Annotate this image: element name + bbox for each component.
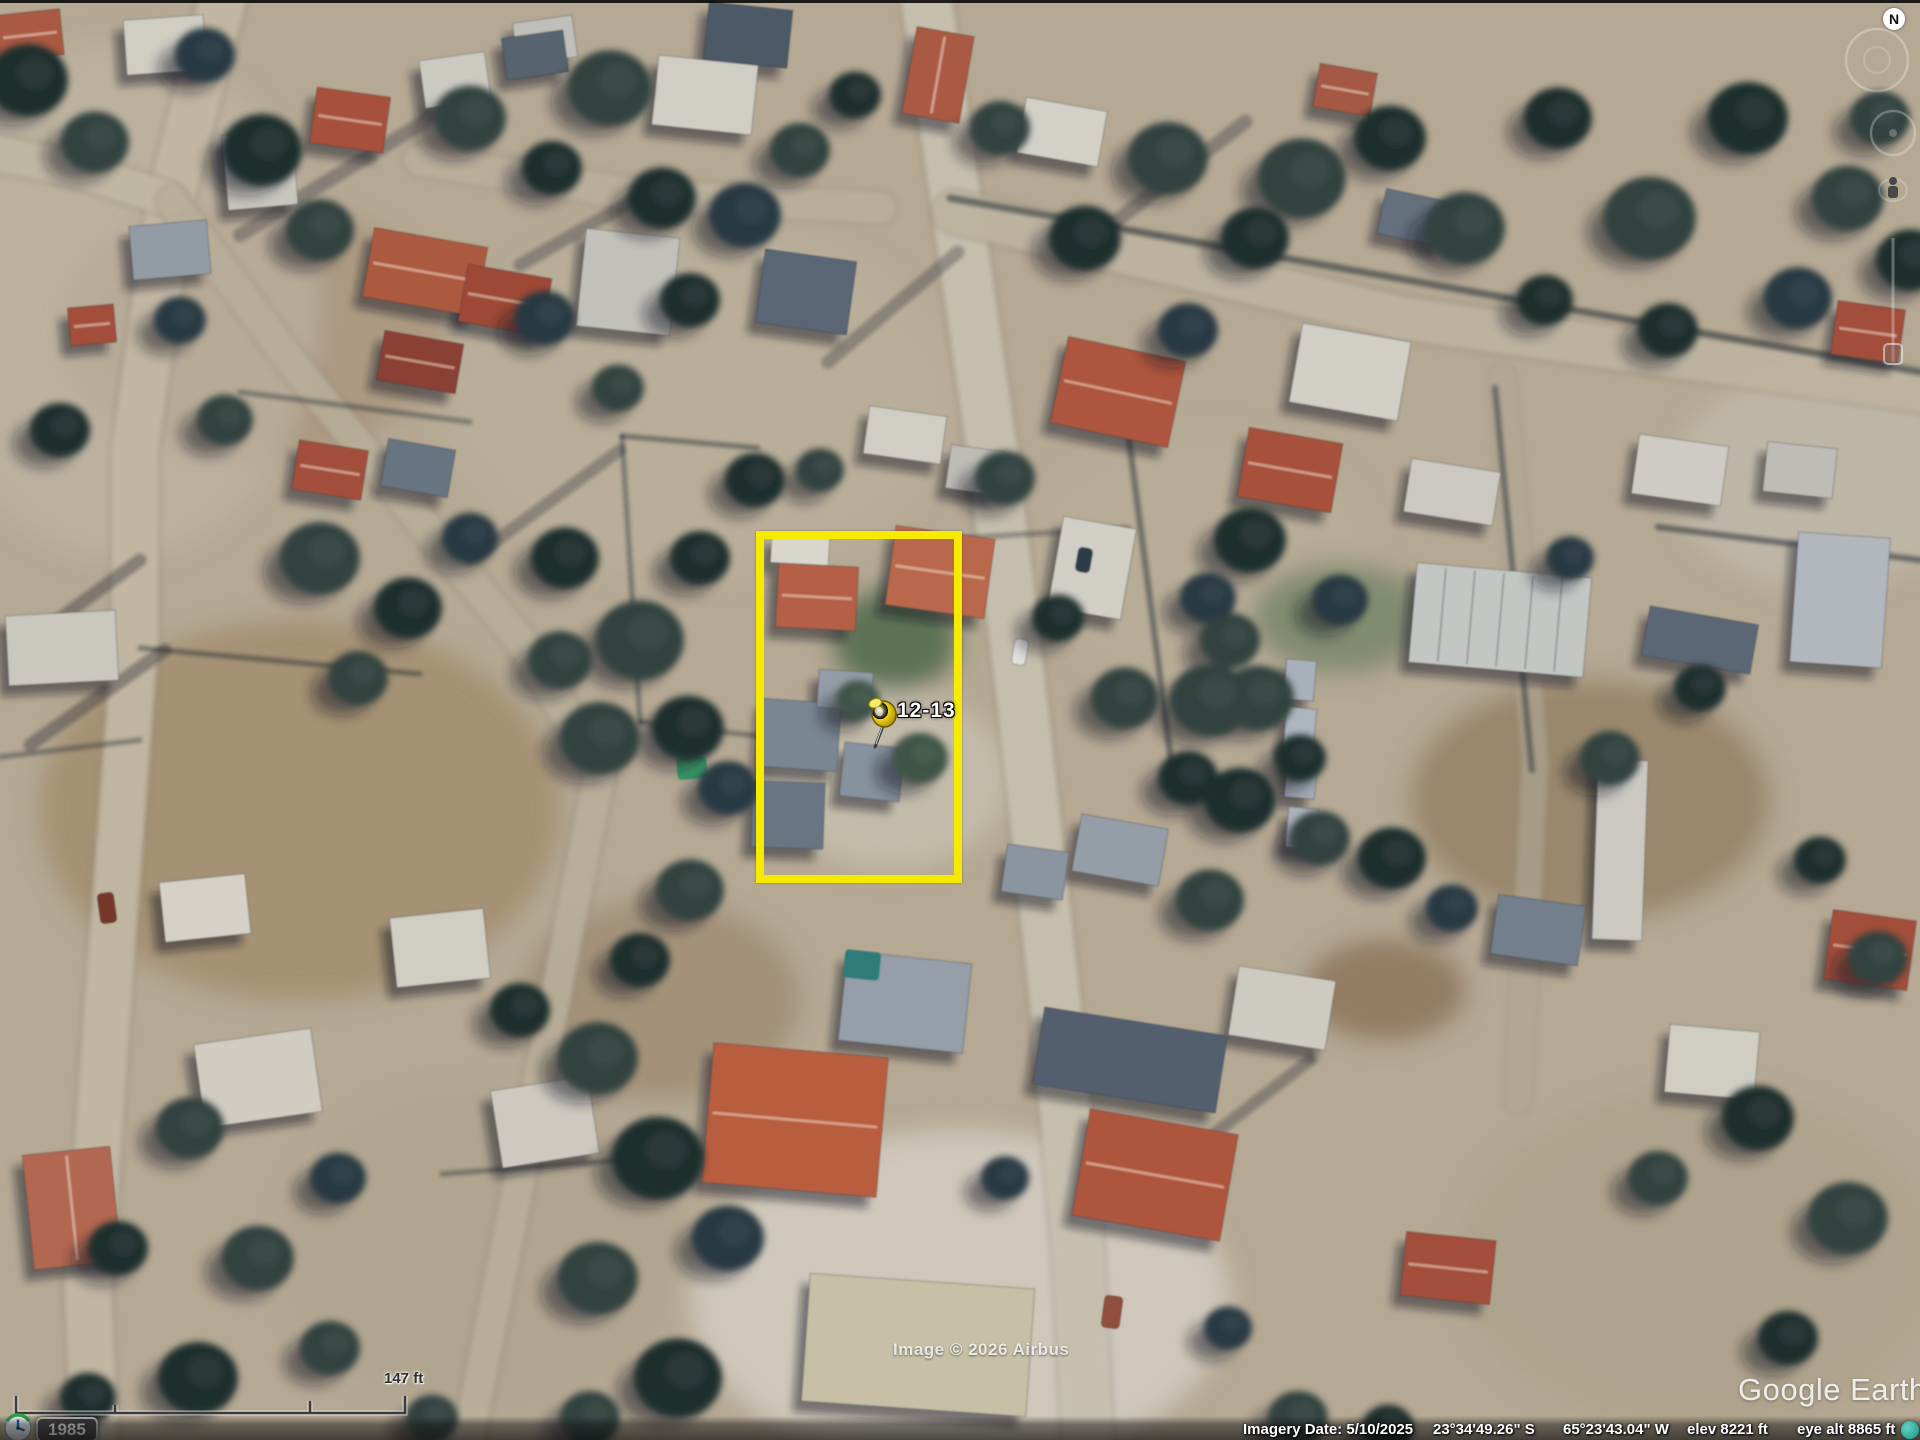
compass-n-button[interactable]: N bbox=[1883, 8, 1905, 30]
status-longitude: 65°23'43.04" W bbox=[1563, 1421, 1669, 1438]
status-elevation: elev 8221 ft bbox=[1687, 1421, 1768, 1438]
placemark-label[interactable]: 12-13 bbox=[897, 699, 956, 723]
pegman-icon[interactable] bbox=[1888, 177, 1898, 198]
navigation-controls: N bbox=[1820, 0, 1920, 400]
globe-icon bbox=[1901, 1421, 1919, 1439]
imagery-copyright: Image © 2026 Airbus bbox=[893, 1340, 1069, 1360]
status-eye-altitude: eye alt 8865 ft bbox=[1797, 1421, 1895, 1438]
status-bar: Imagery Date: 5/10/2025 23°34'49.26" S 6… bbox=[0, 1416, 1920, 1440]
look-joystick[interactable] bbox=[1846, 29, 1908, 91]
google-earth-logo: Google Earth bbox=[1738, 1372, 1920, 1408]
status-imagery-date: Imagery Date: 5/10/2025 bbox=[1243, 1421, 1413, 1438]
scale-bar-label: 147 ft bbox=[384, 1370, 423, 1387]
top-edge-strip bbox=[0, 0, 1920, 3]
zoom-slider-handle[interactable] bbox=[1884, 344, 1902, 364]
status-latitude: 23°34'49.26" S bbox=[1433, 1421, 1535, 1438]
google-earth-viewport: 12-13 N 147 ft bbox=[0, 0, 1920, 1440]
